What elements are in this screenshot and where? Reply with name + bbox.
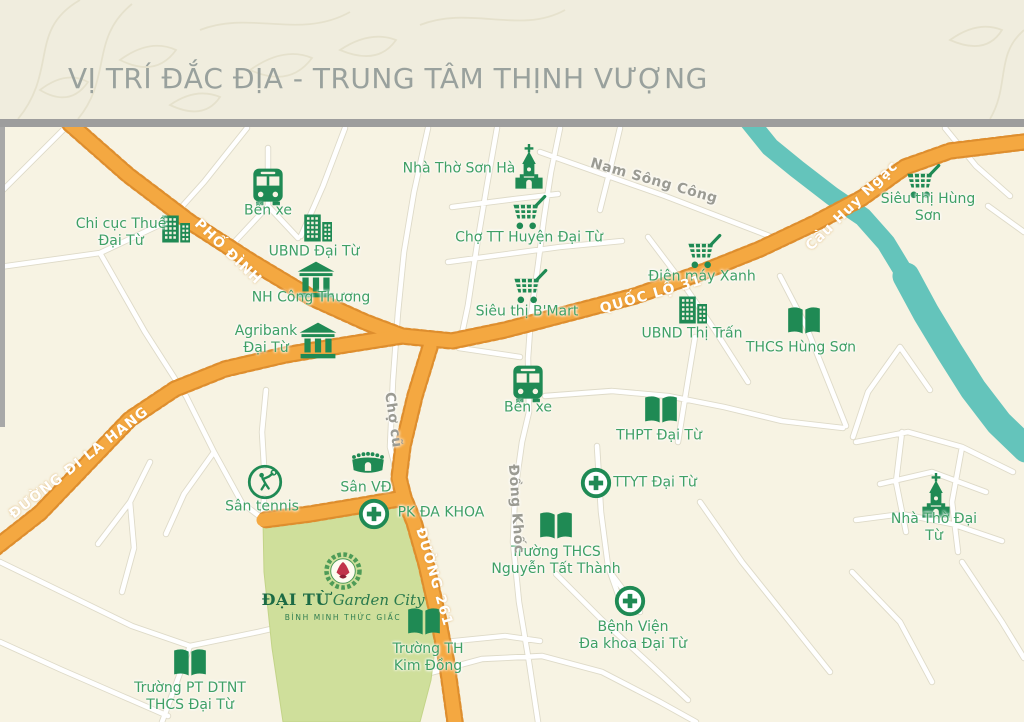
header-divider-bar — [0, 119, 1024, 127]
ttyt-dai-tu-medcross-icon — [583, 470, 609, 496]
page-header: VỊ TRÍ ĐẮC ĐỊA - TRUNG TÂM THỊNH VƯỢNG — [0, 0, 1024, 119]
leaf-decoration — [0, 0, 1024, 119]
san-vd-stadium-icon — [352, 452, 384, 473]
ben-xe-center-bus-icon — [513, 366, 542, 403]
project-name: ĐẠI TỪGarden City — [261, 589, 425, 609]
page-title: VỊ TRÍ ĐẮC ĐỊA - TRUNG TÂM THỊNH VƯỢNG — [68, 62, 708, 95]
project-tagline: BÌNH MINH THỨC GIẤC — [285, 612, 401, 622]
left-edge-bar — [0, 127, 5, 427]
pk-da-khoa-medcross-icon — [361, 501, 387, 527]
ben-xe-north-bus-icon — [253, 169, 282, 206]
benh-vien-da-khoa-medcross-icon — [617, 588, 643, 614]
